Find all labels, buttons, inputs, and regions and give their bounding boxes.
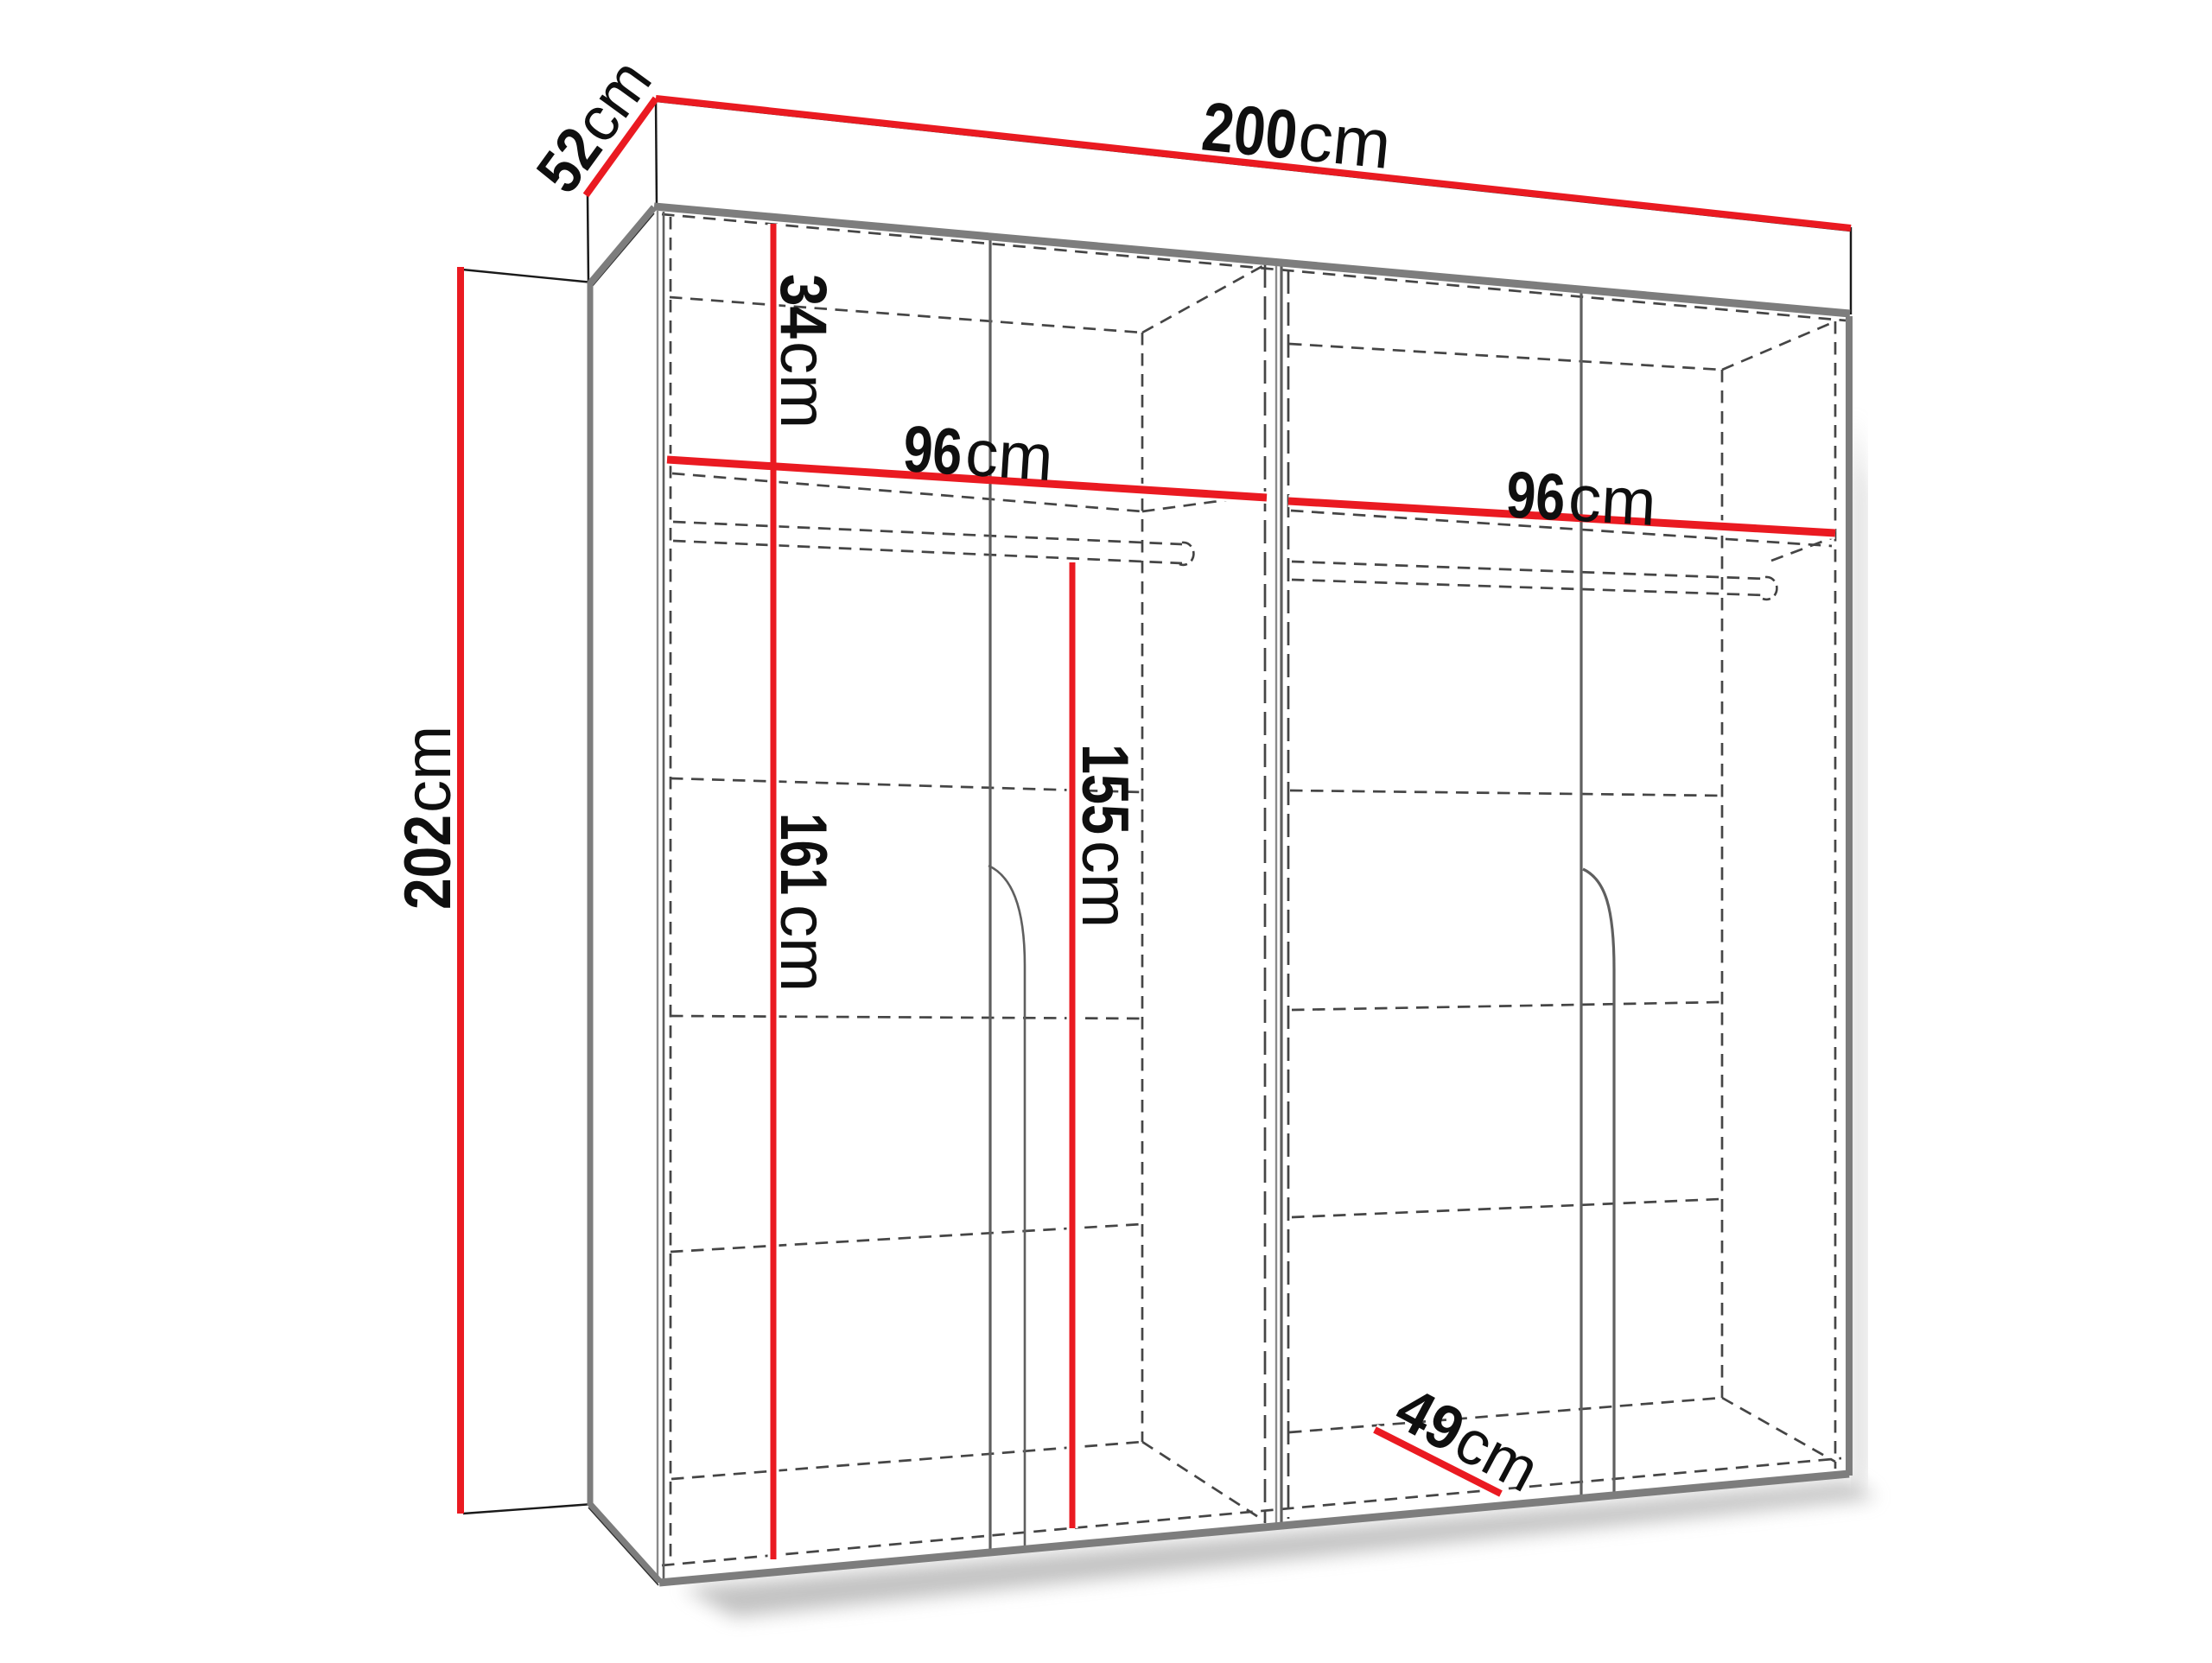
svg-text:cm: cm — [766, 341, 840, 428]
svg-text:cm: cm — [1295, 98, 1395, 183]
svg-text:cm: cm — [391, 726, 465, 813]
svg-text:96: 96 — [901, 412, 964, 489]
svg-text:cm: cm — [1567, 461, 1658, 540]
svg-text:cm: cm — [963, 416, 1056, 495]
svg-text:cm: cm — [766, 904, 840, 992]
svg-text:155: 155 — [1068, 744, 1141, 835]
svg-text:cm: cm — [1068, 841, 1141, 928]
svg-text:200: 200 — [1198, 87, 1300, 174]
svg-text:96: 96 — [1504, 458, 1567, 535]
svg-text:202: 202 — [391, 815, 465, 910]
svg-text:34: 34 — [766, 274, 840, 339]
svg-text:161: 161 — [766, 813, 840, 895]
